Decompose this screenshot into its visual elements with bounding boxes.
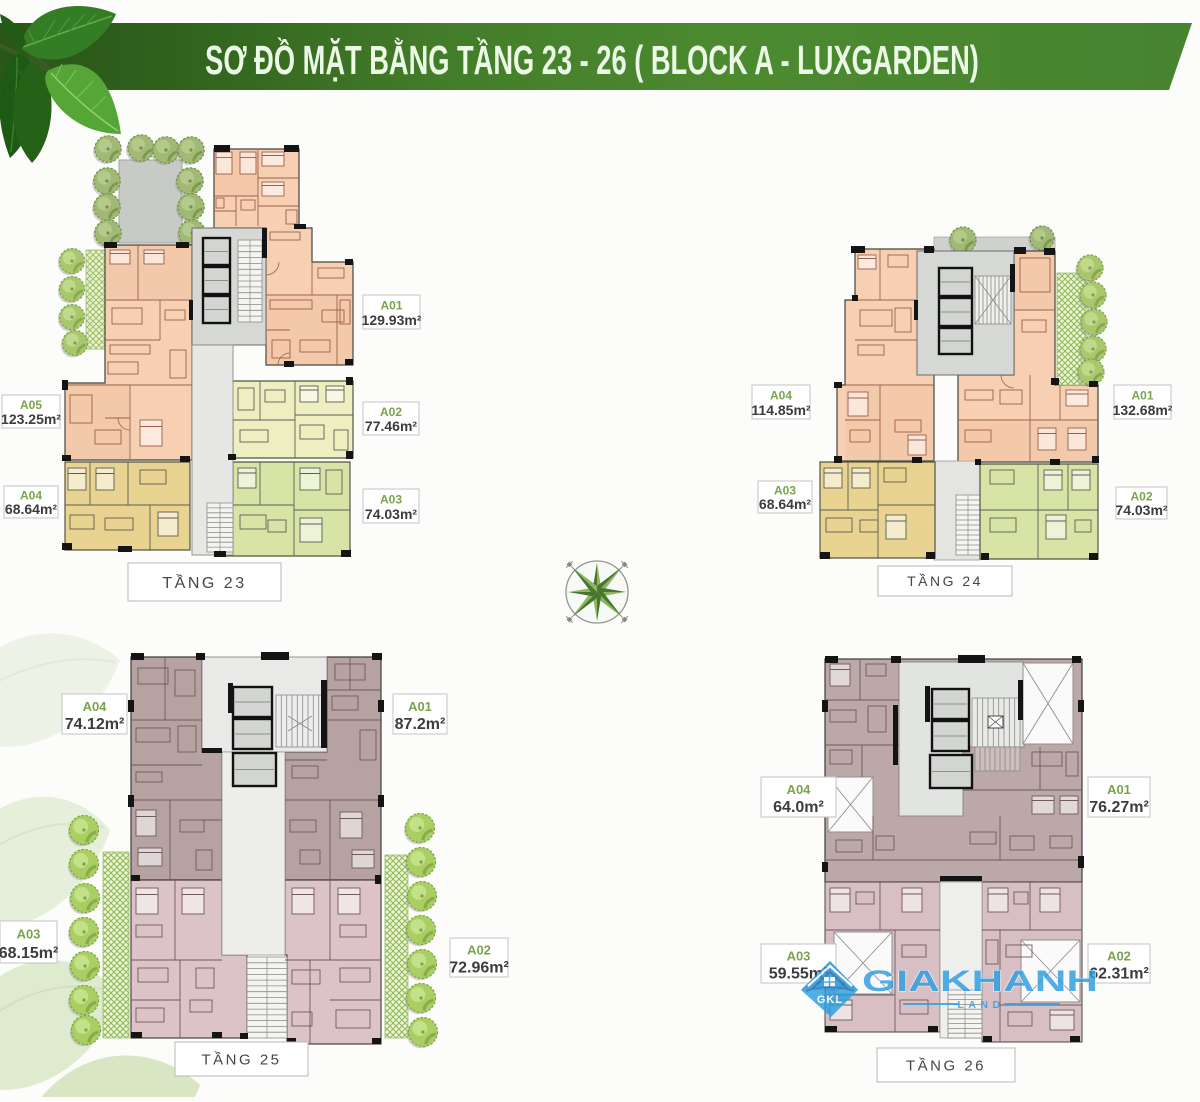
svg-text:A05: A05 (20, 398, 42, 412)
svg-text:A03: A03 (380, 492, 402, 506)
svg-text:74.12m²: 74.12m² (65, 716, 125, 733)
svg-text:A01: A01 (408, 699, 432, 714)
svg-text:87.2m²: 87.2m² (395, 716, 446, 733)
svg-text:A04: A04 (83, 699, 108, 714)
svg-text:GKL: GKL (817, 994, 843, 1006)
svg-text:TẦNG 24: TẦNG 24 (907, 573, 983, 589)
svg-text:TẦNG 23: TẦNG 23 (162, 573, 246, 592)
svg-text:TẦNG 26: TẦNG 26 (906, 1057, 986, 1074)
svg-text:114.85m²: 114.85m² (751, 402, 810, 418)
svg-text:A02: A02 (380, 405, 402, 419)
svg-text:A01: A01 (1107, 782, 1131, 797)
svg-text:132.68m²: 132.68m² (1113, 402, 1173, 418)
svg-text:GIAKHANH: GIAKHANH (862, 965, 1098, 998)
svg-text:LAND: LAND (957, 999, 1004, 1011)
svg-text:A02: A02 (1107, 948, 1131, 963)
svg-text:68.64m²: 68.64m² (759, 496, 811, 512)
svg-text:A03: A03 (17, 927, 41, 942)
svg-text:SƠ ĐỒ MẶT BẰNG TẦNG 23 - 26 (: SƠ ĐỒ MẶT BẰNG TẦNG 23 - 26 ( BLOCK A - … (205, 36, 979, 83)
svg-text:68.15m²: 68.15m² (0, 945, 58, 962)
svg-text:62.31m²: 62.31m² (1089, 965, 1149, 982)
svg-text:A01: A01 (1131, 388, 1153, 402)
svg-text:74.03m²: 74.03m² (365, 506, 417, 522)
svg-text:77.46m²: 77.46m² (365, 418, 417, 434)
svg-text:123.25m²: 123.25m² (1, 411, 61, 427)
svg-text:A03: A03 (787, 948, 811, 963)
svg-text:A04: A04 (787, 782, 812, 797)
svg-text:A01: A01 (380, 298, 402, 312)
svg-text:68.64m²: 68.64m² (5, 501, 57, 517)
svg-text:76.27m²: 76.27m² (1089, 799, 1149, 816)
svg-text:TẦNG 25: TẦNG 25 (201, 1051, 281, 1068)
svg-text:A04: A04 (770, 388, 792, 402)
svg-text:74.03m²: 74.03m² (1115, 502, 1167, 518)
svg-text:A02: A02 (467, 942, 491, 957)
svg-text:64.0m²: 64.0m² (773, 799, 824, 816)
svg-text:72.96m²: 72.96m² (449, 959, 509, 976)
svg-text:129.93m²: 129.93m² (362, 312, 422, 328)
